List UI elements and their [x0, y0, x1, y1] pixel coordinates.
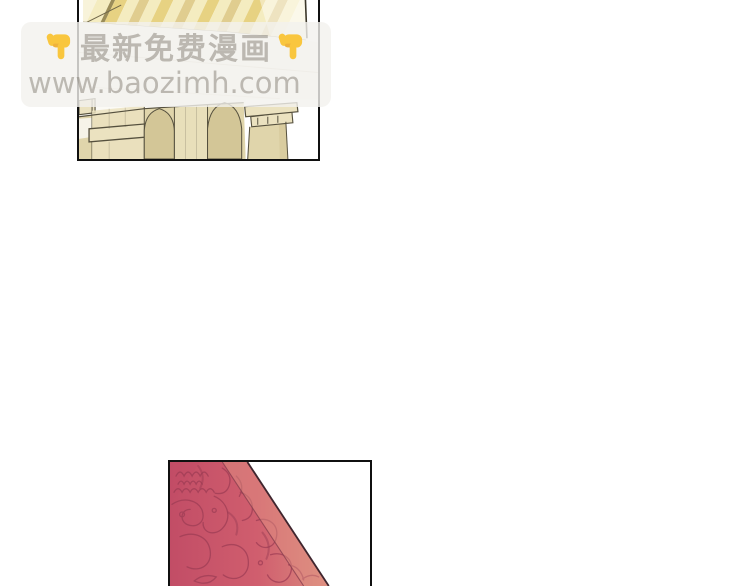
pointing-down-hand-icon: [278, 31, 306, 61]
comic-panel-drape: [168, 460, 372, 586]
watermark-text: 最新免费漫画: [80, 24, 272, 68]
pointing-down-hand-icon: [46, 31, 74, 61]
comic-page: 最新免费漫画 www.baozimh.com: [0, 0, 750, 586]
watermark-title-row: 最新免费漫画: [21, 27, 331, 65]
drape-illustration: [170, 462, 370, 586]
watermark-banner: 最新免费漫画 www.baozimh.com: [21, 22, 331, 107]
watermark-url: www.baozimh.com: [21, 66, 331, 100]
